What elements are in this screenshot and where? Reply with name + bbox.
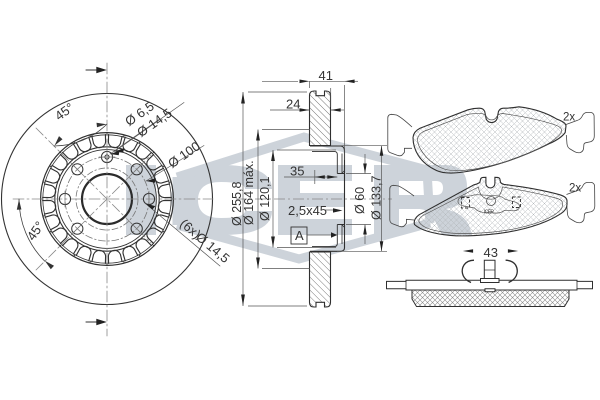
- svg-text:24: 24: [286, 97, 300, 112]
- svg-text:ICER: ICER: [484, 210, 494, 216]
- svg-text:Ø 120,1: Ø 120,1: [258, 176, 272, 221]
- svg-text:2x: 2x: [563, 112, 575, 124]
- svg-text:35: 35: [290, 164, 304, 179]
- svg-text:43: 43: [484, 245, 498, 260]
- svg-text:A: A: [295, 228, 304, 243]
- svg-text:2,5x45: 2,5x45: [288, 203, 327, 218]
- svg-text:41: 41: [319, 68, 333, 83]
- svg-text:Ø 164 máx.: Ø 164 máx.: [242, 160, 256, 225]
- svg-text:2x: 2x: [569, 183, 581, 195]
- svg-text:Ø 133,7: Ø 133,7: [370, 175, 384, 220]
- svg-text:Ø 60: Ø 60: [353, 187, 367, 214]
